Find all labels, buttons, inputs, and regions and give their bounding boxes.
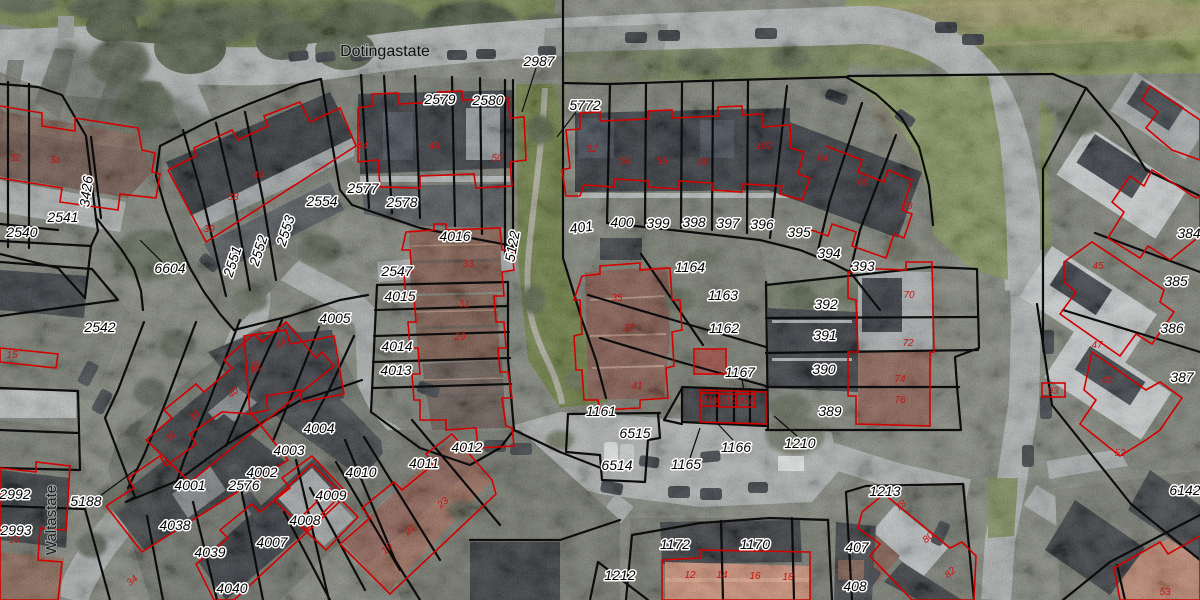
svg-text:6142: 6142 [1169, 482, 1200, 498]
svg-text:393: 393 [851, 258, 875, 274]
svg-text:29: 29 [453, 332, 466, 343]
svg-text:Dotingastate: Dotingastate [340, 43, 430, 60]
svg-text:4038: 4038 [159, 517, 190, 533]
svg-text:4005: 4005 [319, 310, 350, 326]
svg-text:1172: 1172 [660, 536, 690, 552]
svg-text:398: 398 [682, 214, 706, 230]
svg-text:15: 15 [6, 350, 18, 361]
svg-text:4004: 4004 [303, 420, 334, 436]
svg-text:390: 390 [812, 361, 836, 377]
svg-text:1212: 1212 [604, 567, 635, 583]
svg-text:45: 45 [1092, 261, 1104, 272]
svg-text:38: 38 [227, 192, 239, 203]
svg-text:385: 385 [1164, 273, 1188, 289]
svg-text:1161: 1161 [586, 403, 616, 419]
svg-text:4003: 4003 [273, 442, 304, 458]
svg-text:4039: 4039 [194, 544, 225, 560]
svg-text:72: 72 [902, 338, 914, 349]
svg-text:52: 52 [586, 144, 598, 155]
svg-text:50: 50 [491, 153, 503, 164]
svg-text:76: 76 [894, 395, 906, 406]
svg-text:2554: 2554 [305, 193, 337, 209]
svg-text:58: 58 [697, 157, 709, 168]
svg-text:4001: 4001 [174, 477, 205, 493]
svg-text:2987: 2987 [522, 53, 555, 69]
svg-text:401: 401 [569, 218, 594, 237]
svg-text:1167: 1167 [725, 364, 756, 380]
svg-text:2579: 2579 [423, 91, 455, 107]
svg-text:2540: 2540 [5, 224, 37, 240]
svg-text:47: 47 [1091, 340, 1103, 351]
svg-text:4008: 4008 [289, 512, 320, 528]
svg-text:54: 54 [619, 156, 631, 167]
svg-text:53: 53 [1159, 587, 1171, 598]
svg-text:14: 14 [716, 570, 728, 581]
svg-text:1163: 1163 [708, 287, 738, 303]
svg-text:32: 32 [9, 153, 21, 164]
svg-text:5772: 5772 [569, 97, 600, 113]
svg-text:407: 407 [845, 539, 870, 555]
svg-text:3a: 3a [49, 155, 61, 166]
svg-text:33: 33 [462, 259, 474, 270]
svg-text:1213: 1213 [869, 483, 900, 499]
svg-text:4012: 4012 [451, 439, 482, 455]
svg-text:4016: 4016 [439, 228, 470, 244]
svg-text:Waltastate: Waltastate [43, 485, 60, 555]
svg-text:1164: 1164 [675, 259, 705, 275]
svg-text:400: 400 [610, 214, 634, 230]
svg-text:5188: 5188 [70, 493, 101, 509]
svg-text:4015: 4015 [384, 288, 415, 304]
svg-text:74: 74 [894, 374, 906, 385]
svg-text:16: 16 [749, 571, 761, 582]
svg-text:102: 102 [756, 141, 773, 152]
svg-text:4007: 4007 [256, 534, 288, 550]
svg-text:4010: 4010 [345, 464, 376, 480]
svg-text:41c: 41c [738, 396, 754, 407]
svg-text:2547: 2547 [380, 263, 413, 279]
svg-text:387: 387 [1170, 369, 1195, 385]
svg-text:389: 389 [818, 403, 842, 419]
svg-text:2542: 2542 [83, 319, 115, 335]
svg-text:2541: 2541 [46, 209, 78, 225]
svg-text:41: 41 [631, 381, 642, 392]
svg-text:64: 64 [817, 153, 829, 164]
svg-text:56: 56 [656, 156, 668, 167]
svg-text:6604: 6604 [154, 260, 185, 276]
svg-text:41a: 41a [702, 395, 719, 406]
svg-text:66: 66 [857, 177, 869, 188]
svg-text:392: 392 [814, 296, 838, 312]
svg-text:48: 48 [428, 141, 440, 152]
svg-text:4040: 4040 [216, 580, 247, 596]
svg-text:6514: 6514 [601, 457, 632, 473]
svg-text:12: 12 [684, 570, 696, 581]
svg-text:408: 408 [843, 578, 867, 594]
svg-text:2578: 2578 [385, 194, 417, 210]
svg-text:31: 31 [458, 299, 469, 310]
svg-text:44: 44 [356, 141, 368, 152]
svg-text:1165: 1165 [671, 456, 701, 472]
svg-text:1166: 1166 [721, 439, 751, 455]
svg-text:395: 395 [787, 224, 811, 240]
svg-text:2992: 2992 [0, 486, 31, 502]
svg-text:1162: 1162 [709, 320, 739, 336]
svg-text:394: 394 [817, 245, 841, 261]
svg-text:93: 93 [1047, 386, 1059, 397]
svg-text:386: 386 [1160, 320, 1184, 336]
svg-text:2580: 2580 [471, 92, 503, 108]
svg-text:4002: 4002 [246, 464, 277, 480]
svg-text:37: 37 [623, 323, 635, 334]
svg-text:41b: 41b [720, 396, 737, 407]
svg-text:70: 70 [903, 290, 915, 301]
svg-text:1170: 1170 [740, 536, 770, 552]
svg-text:68: 68 [901, 201, 913, 212]
svg-text:4014: 4014 [381, 338, 412, 354]
svg-text:18: 18 [782, 572, 794, 583]
svg-text:391: 391 [813, 327, 836, 343]
svg-text:6515: 6515 [619, 425, 650, 441]
svg-text:49: 49 [1101, 375, 1113, 386]
svg-text:4009: 4009 [315, 487, 346, 503]
svg-text:30: 30 [203, 224, 215, 235]
svg-text:384: 384 [1177, 225, 1200, 241]
svg-text:1210: 1210 [784, 435, 815, 451]
svg-text:397: 397 [716, 215, 741, 231]
svg-text:399: 399 [646, 215, 670, 231]
svg-text:52: 52 [1114, 448, 1126, 459]
svg-text:2577: 2577 [346, 180, 379, 196]
svg-text:35: 35 [611, 293, 623, 304]
svg-text:396: 396 [750, 216, 774, 232]
svg-text:10: 10 [8, 535, 20, 546]
svg-text:40: 40 [252, 170, 264, 181]
svg-text:4011: 4011 [409, 455, 439, 471]
svg-text:4013: 4013 [380, 362, 411, 378]
